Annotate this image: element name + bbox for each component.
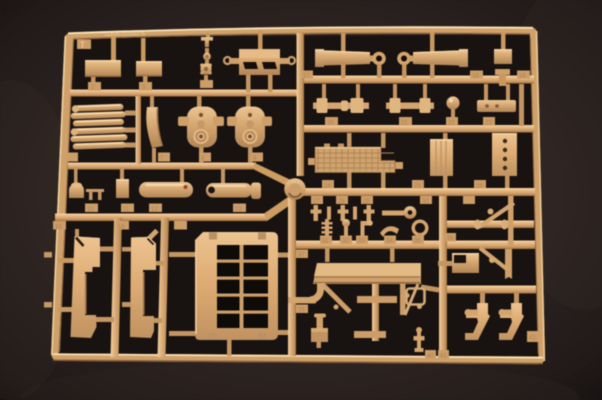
svg-text:16: 16 (118, 225, 125, 231)
svg-text:13: 13 (235, 207, 242, 213)
svg-text:17: 17 (303, 74, 310, 80)
svg-text:41: 41 (440, 354, 447, 360)
svg-text:24: 24 (324, 184, 331, 190)
svg-text:12: 12 (151, 207, 158, 213)
svg-text:22: 22 (448, 121, 455, 127)
svg-text:15: 15 (55, 225, 62, 231)
svg-text:26: 26 (476, 184, 483, 190)
svg-text:27: 27 (313, 199, 320, 205)
svg-text:29: 29 (363, 199, 370, 205)
svg-text:37: 37 (298, 253, 305, 259)
svg-text:18: 18 (472, 74, 479, 80)
svg-text:23: 23 (485, 121, 492, 127)
svg-text:33: 33 (358, 239, 365, 245)
svg-text:T: T (80, 41, 85, 50)
svg-text:32: 32 (342, 239, 349, 245)
svg-text:21: 21 (401, 121, 408, 127)
svg-text:31: 31 (322, 239, 329, 245)
svg-text:35: 35 (414, 239, 421, 245)
svg-text:11: 11 (123, 207, 130, 213)
svg-text:39: 39 (298, 308, 305, 314)
svg-text:34: 34 (386, 239, 393, 245)
svg-text:30: 30 (422, 199, 429, 205)
svg-text:36: 36 (447, 236, 454, 242)
svg-text:42: 42 (529, 336, 536, 342)
svg-text:28: 28 (338, 199, 345, 205)
svg-text:10: 10 (87, 207, 94, 213)
svg-text:19: 19 (519, 74, 526, 80)
svg-text:20: 20 (327, 121, 334, 127)
svg-text:25: 25 (414, 184, 421, 190)
svg-text:40: 40 (427, 354, 434, 360)
